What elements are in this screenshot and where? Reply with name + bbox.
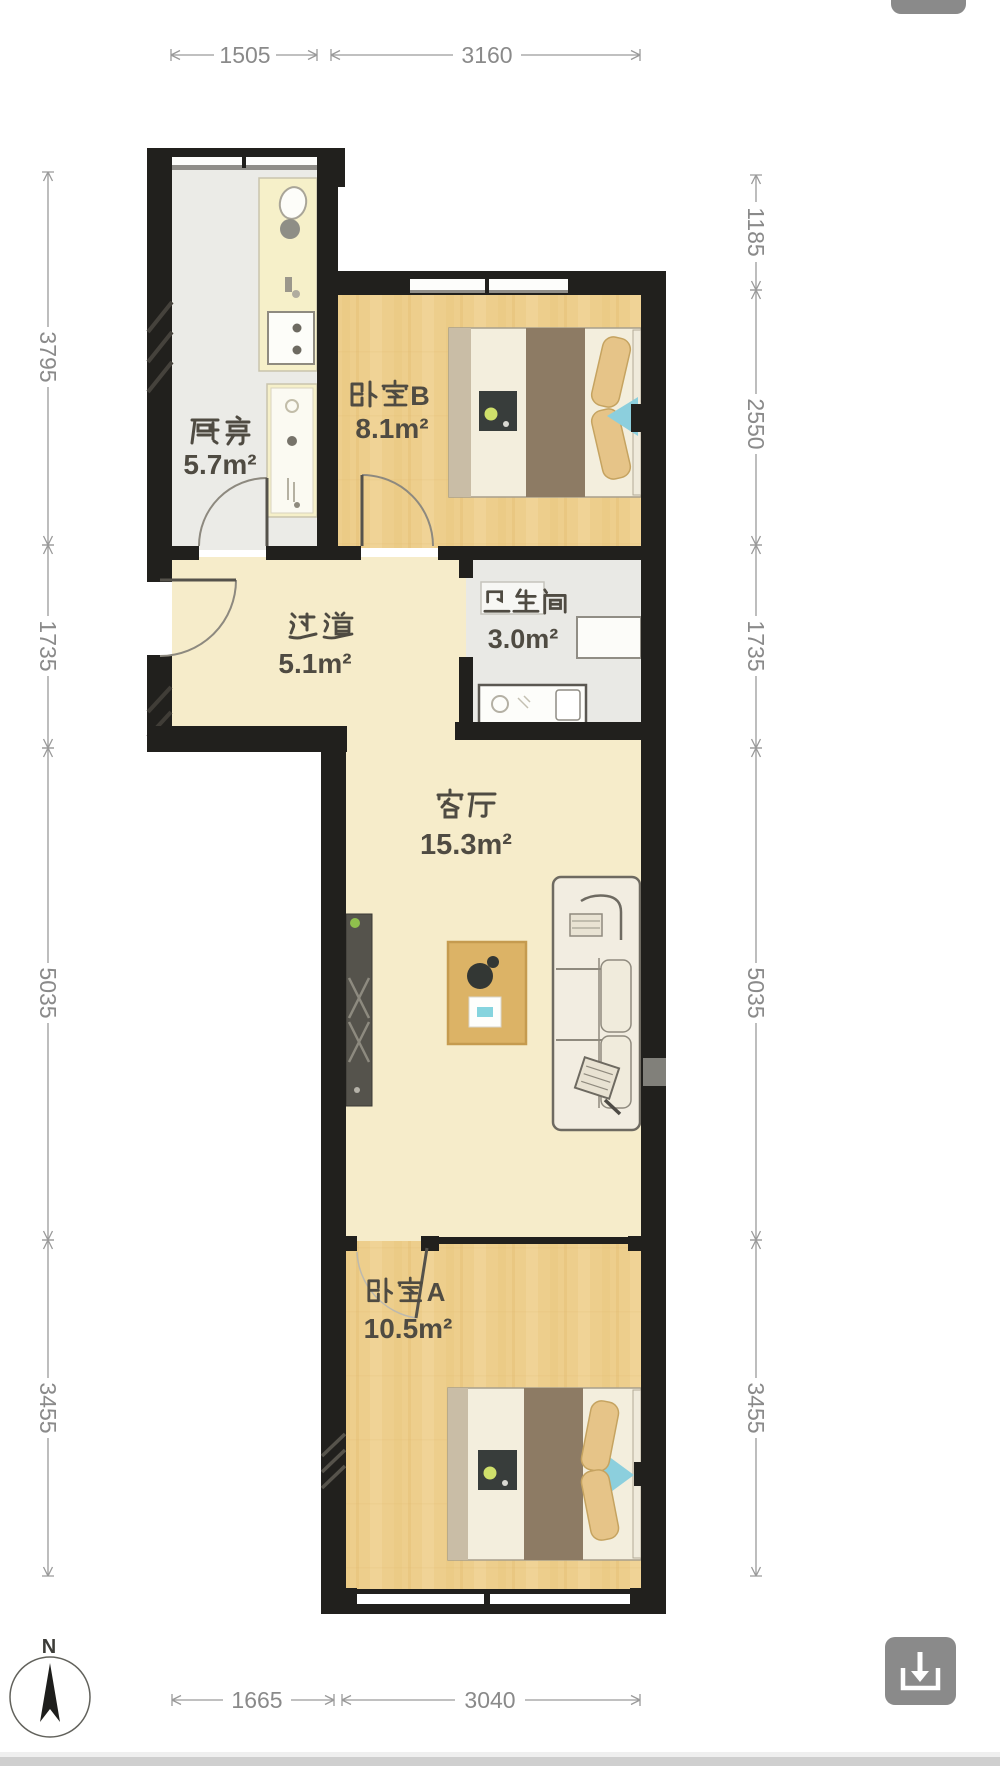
svg-text:3455: 3455	[35, 1382, 61, 1433]
svg-text:B: B	[410, 381, 430, 411]
svg-text:3455: 3455	[743, 1382, 769, 1433]
svg-text:15.3m²: 15.3m²	[420, 829, 512, 861]
svg-text:1735: 1735	[35, 620, 61, 671]
svg-text:3.0m²: 3.0m²	[488, 624, 559, 654]
svg-text:5.7m²: 5.7m²	[183, 449, 256, 480]
svg-text:5035: 5035	[743, 967, 769, 1018]
svg-text:N: N	[42, 1636, 56, 1658]
svg-text:A: A	[427, 1277, 446, 1307]
svg-text:3160: 3160	[461, 42, 512, 68]
svg-text:3040: 3040	[464, 1687, 515, 1713]
svg-text:1665: 1665	[231, 1687, 282, 1713]
svg-text:3795: 3795	[35, 331, 61, 382]
svg-text:5.1m²: 5.1m²	[278, 648, 351, 679]
svg-text:1505: 1505	[219, 42, 270, 68]
svg-text:1185: 1185	[743, 207, 769, 256]
svg-text:1735: 1735	[743, 620, 769, 671]
svg-text:10.5m²: 10.5m²	[364, 1313, 453, 1344]
svg-text:8.1m²: 8.1m²	[355, 413, 428, 444]
svg-text:2550: 2550	[743, 398, 769, 449]
svg-text:5035: 5035	[35, 967, 61, 1018]
